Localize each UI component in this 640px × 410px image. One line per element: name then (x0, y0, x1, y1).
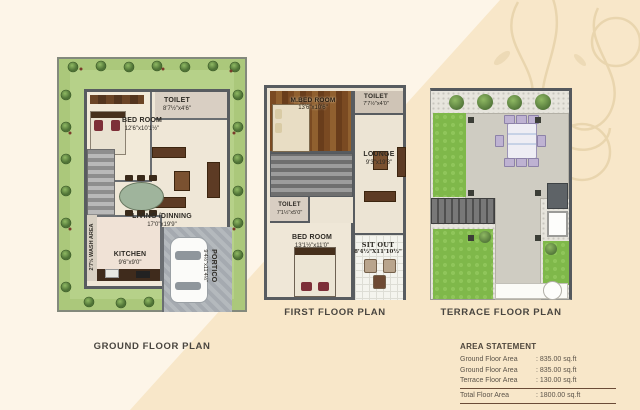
bed-pillow (94, 120, 103, 131)
first-sitout (353, 233, 403, 300)
area-statement: AREA STATEMENT Ground Floor Area : 835.0… (460, 342, 616, 405)
car-rear-window (175, 282, 201, 290)
car (170, 237, 208, 303)
ground-floor-plan: BED ROOM 12'6"x10'1½" TOILET 8'7½"x4'6" … (57, 57, 247, 312)
area-total-row: Total Floor Area : 1800.00 sq.ft (460, 391, 616, 402)
lounge-sofa (364, 191, 396, 202)
terrace-chair (516, 158, 527, 167)
terrace-lawn-left (433, 113, 466, 197)
ground-staircase (87, 149, 115, 216)
planter-box (535, 235, 541, 241)
ground-floor-plan-title: GROUND FLOOR PLAN (57, 341, 247, 352)
terrace-chair (504, 115, 515, 124)
first-bed (294, 247, 336, 297)
master-bed (272, 104, 310, 152)
brochure-page: BED ROOM 12'6"x10'1½" TOILET 8'7½"x4'6" … (0, 0, 640, 410)
planter-box (468, 117, 474, 123)
terrace-utility-unit (547, 183, 568, 209)
terrace-tree (449, 95, 464, 110)
bed-pillow (318, 282, 329, 291)
sitout-chair (364, 259, 377, 273)
dining-chair (149, 210, 157, 216)
coffee-table (174, 171, 190, 191)
terrace-tree (507, 95, 522, 110)
first-master-bedroom (270, 91, 353, 153)
dining-chair (125, 175, 133, 181)
area-statement-title: AREA STATEMENT (460, 342, 616, 351)
first-floor-plan-title: FIRST FLOOR PLAN (264, 307, 406, 318)
first-bedroom (270, 223, 353, 297)
terrace-chair (516, 115, 527, 124)
terrace-floor-plan (430, 88, 572, 300)
bed-pillow (275, 109, 282, 119)
terrace-water-tank (547, 211, 568, 237)
car-windshield (175, 251, 201, 260)
planter-box (468, 190, 474, 196)
first-lounge (353, 115, 403, 233)
dining-chair (149, 175, 157, 181)
terrace-shrub (545, 243, 557, 255)
bed-pillow (111, 120, 120, 131)
area-row: Ground Floor Area : 835.00 sq.ft (460, 355, 616, 366)
terrace-dining-table (507, 123, 537, 159)
dining-chair (137, 210, 145, 216)
planter-box (468, 235, 474, 241)
terrace-chair (528, 158, 539, 167)
planter-box (535, 117, 541, 123)
ground-toilet (155, 92, 227, 120)
area-divider (460, 403, 616, 404)
area-row: Terrace Floor Area : 130.00 sq.ft (460, 376, 616, 387)
planter-box (535, 190, 541, 196)
tv-console (207, 162, 220, 198)
sitout-table (373, 275, 386, 289)
terrace-chair (537, 135, 546, 147)
terrace-tree (535, 94, 551, 110)
terrace-tank-circle (543, 281, 562, 300)
kitchen-sink (105, 269, 119, 278)
ground-wash-label: 2'7½ WASH AREA (89, 220, 95, 274)
terrace-chair (495, 135, 504, 147)
sofa (152, 147, 186, 158)
dining-chair (137, 175, 145, 181)
dining-table (119, 182, 164, 211)
terrace-chair (504, 158, 515, 167)
terrace-floor-plan-title: TERRACE FLOOR PLAN (430, 307, 572, 318)
ground-kitchen (97, 215, 162, 281)
terrace-tree (477, 94, 493, 110)
first-toilet-small (270, 197, 310, 223)
kitchen-stove (136, 271, 150, 278)
first-toilet-top (353, 91, 403, 115)
first-staircase (270, 153, 353, 197)
ground-portico (162, 227, 232, 312)
kitchen-counter (97, 269, 160, 281)
area-row: Ground Floor Area : 835.00 sq.ft (460, 366, 616, 377)
terrace-staircase (431, 198, 495, 224)
dining-chair (125, 210, 133, 216)
first-floor-plan: M.BED ROOM 13'6"x10'6" TOILET 7'7½"x4'0"… (264, 85, 406, 300)
lounge-table (373, 151, 388, 170)
terrace-shrub (479, 231, 491, 243)
bed-pillow (275, 123, 282, 133)
ground-wardrobe (90, 95, 144, 104)
area-divider (460, 388, 616, 389)
bed-pillow (301, 282, 312, 291)
bed-headboard (295, 248, 335, 255)
lounge-wall-unit (397, 147, 406, 177)
bed-headboard (91, 112, 125, 118)
sitout-chair (383, 259, 396, 273)
